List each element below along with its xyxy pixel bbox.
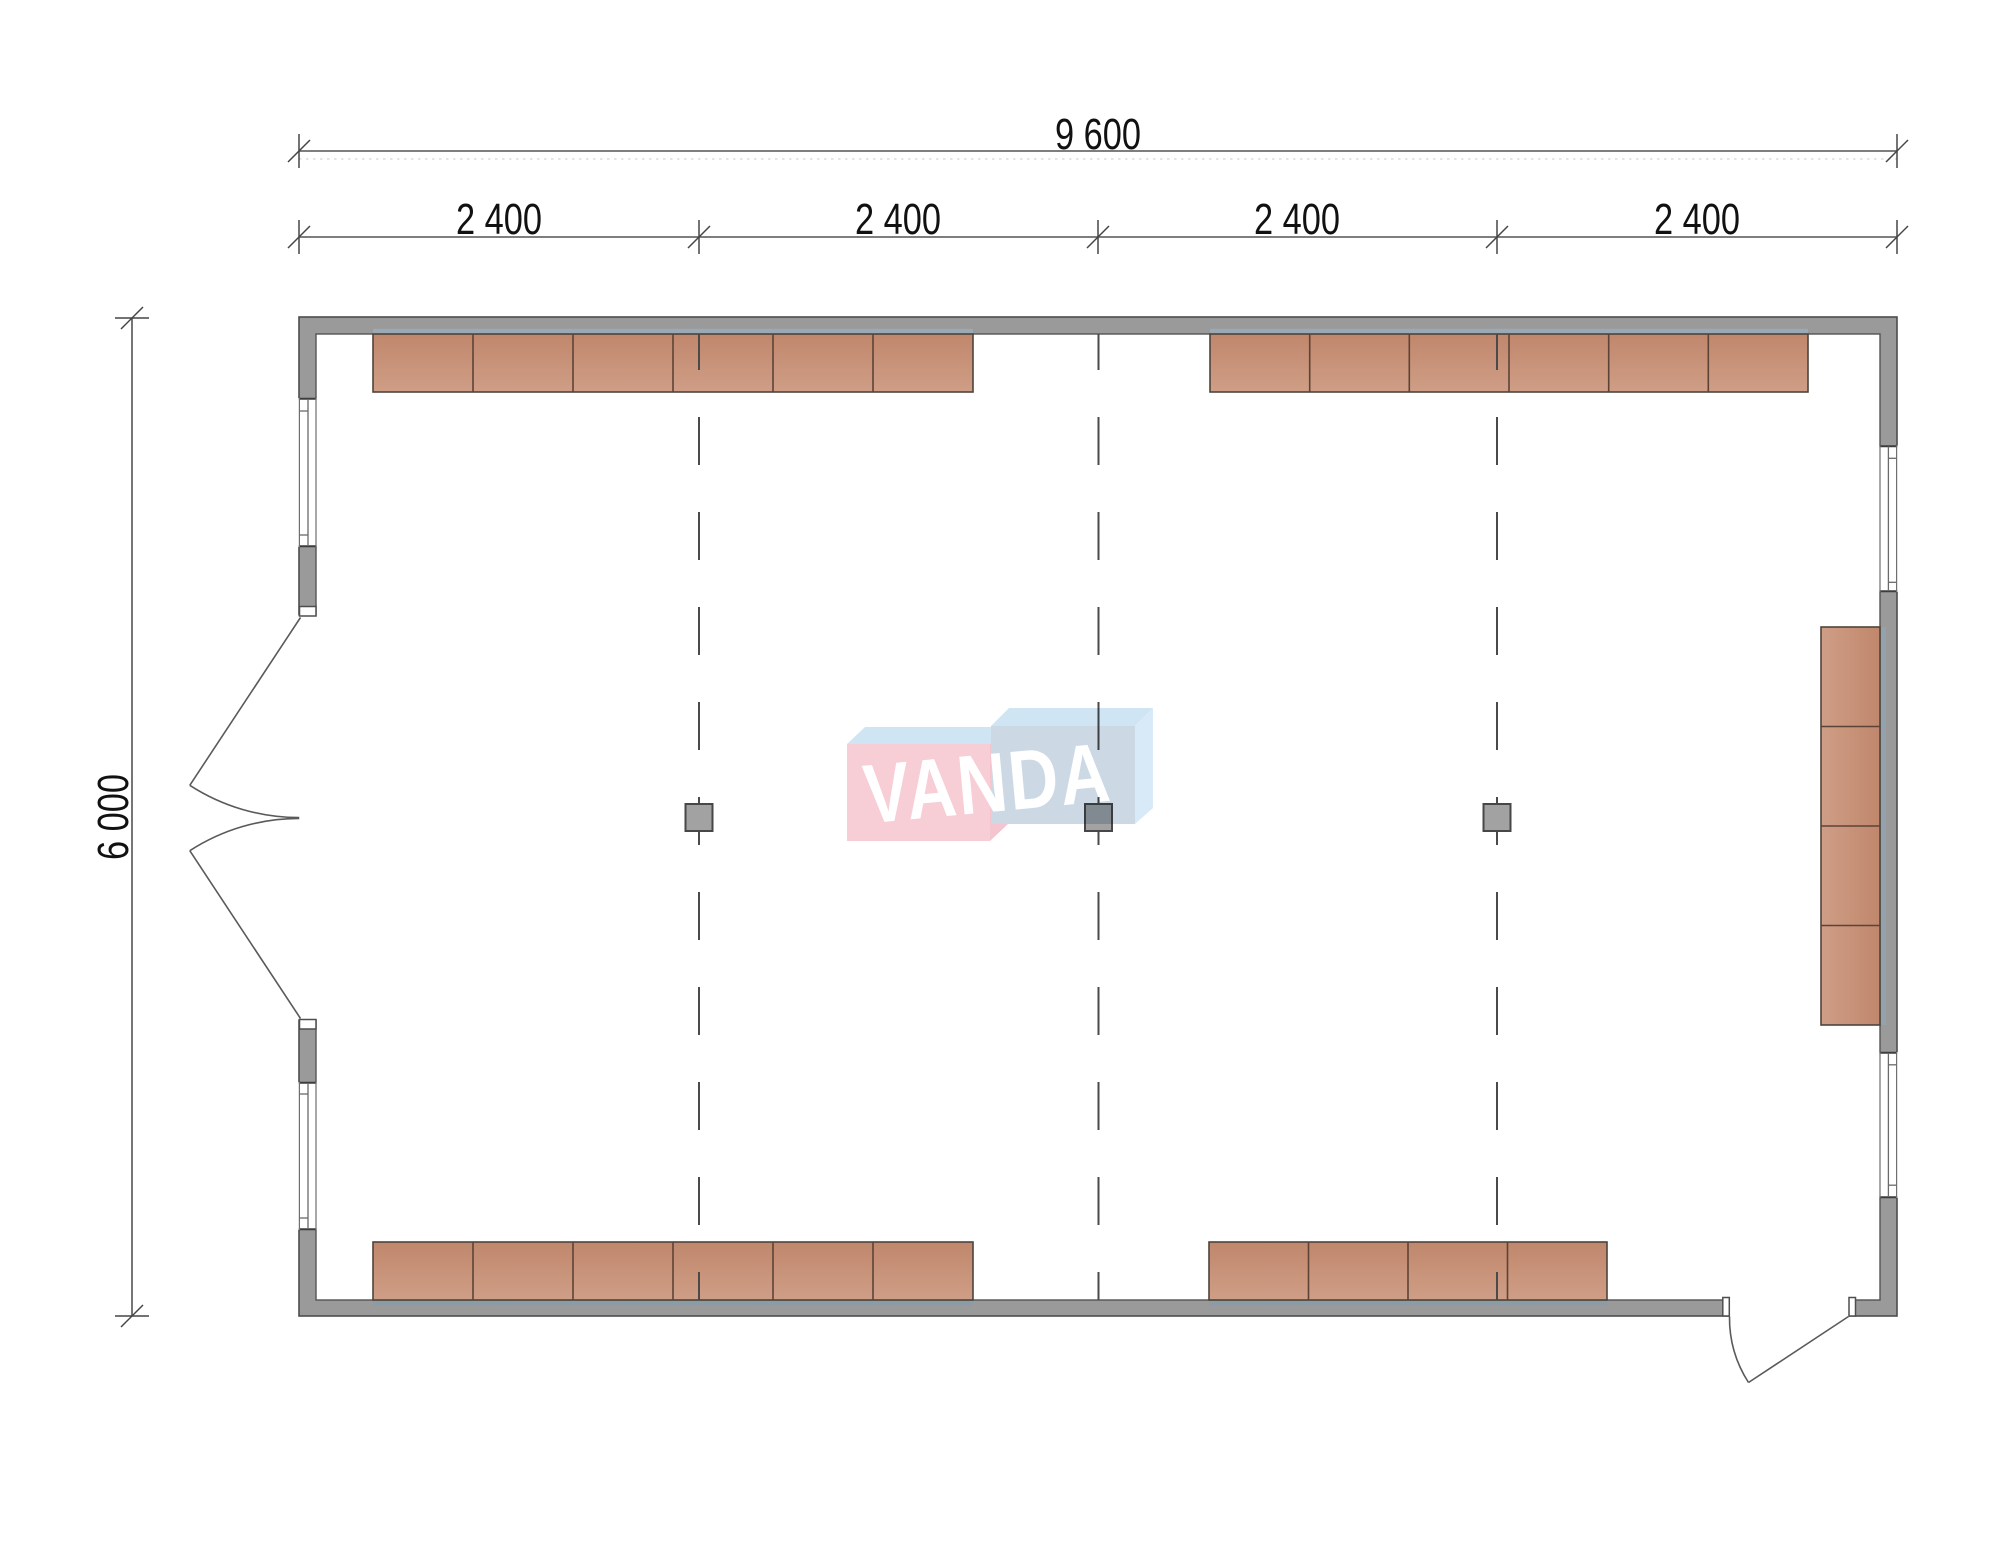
svg-text:2 400: 2 400 xyxy=(1654,195,1740,244)
svg-text:6 000: 6 000 xyxy=(89,774,138,860)
svg-text:2 400: 2 400 xyxy=(855,195,941,244)
svg-text:9 600: 9 600 xyxy=(1055,110,1141,159)
svg-text:2 400: 2 400 xyxy=(1254,195,1340,244)
svg-text:2 400: 2 400 xyxy=(456,195,542,244)
